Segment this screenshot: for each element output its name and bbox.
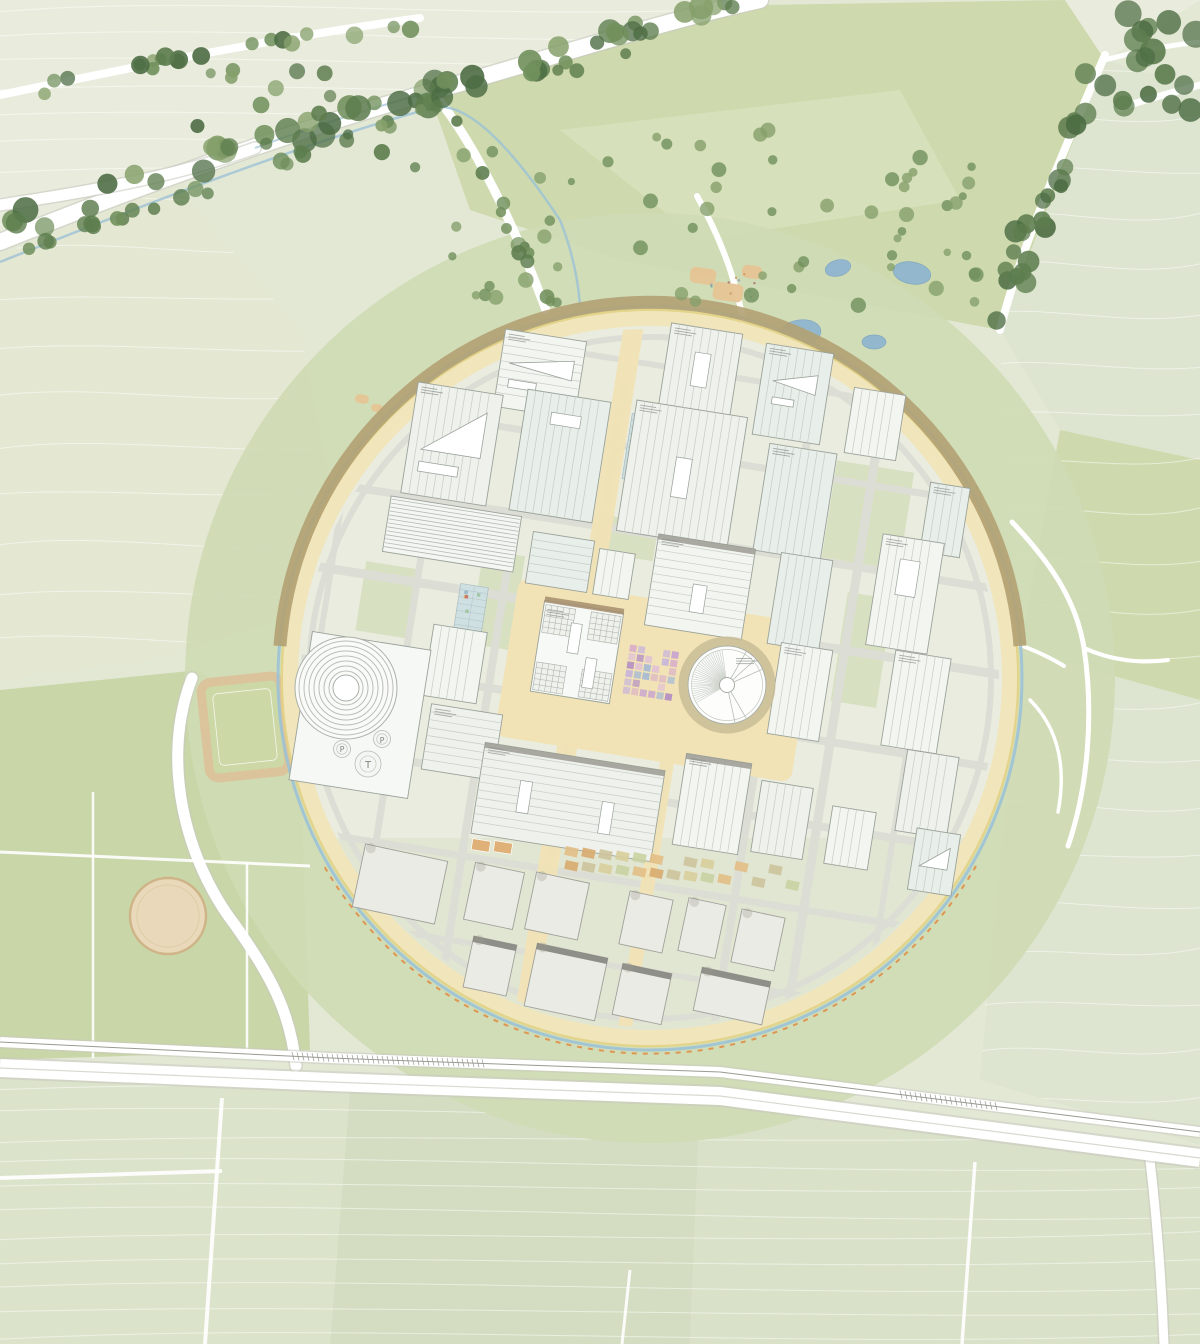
masterplan-map: P P T — [0, 0, 1200, 1344]
site-plan-canvas: P P T — [0, 0, 1200, 1344]
parking-ramp-p2-label: P — [380, 736, 385, 745]
parking-ramp-p1-label: P — [340, 745, 345, 754]
riding-arena — [130, 878, 206, 954]
rotunda-building — [683, 641, 771, 729]
sports-field — [200, 675, 290, 779]
tower-ramp-t-label: T — [364, 760, 372, 771]
